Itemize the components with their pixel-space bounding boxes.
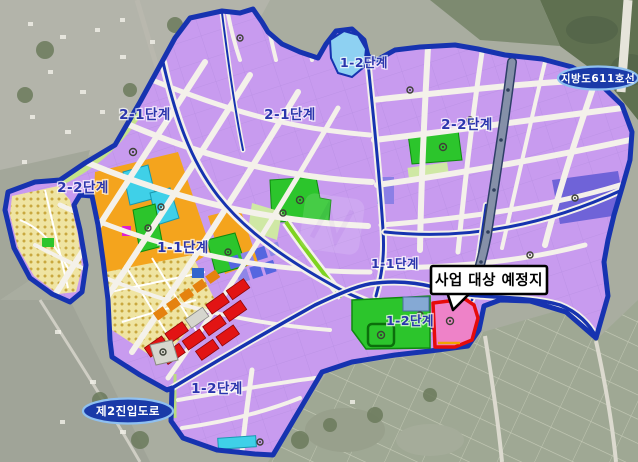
- region-label-2-2-center: 2-2단계: [441, 116, 493, 133]
- zone-cyan-lobe: [218, 436, 257, 450]
- callout-label: 사업 대상 예정지: [435, 271, 543, 289]
- road-badge-access: 제2진입도로: [83, 399, 173, 424]
- region-label-1-2-site: 1-2단계: [386, 313, 434, 328]
- region-label-1-2-top: 1-2단계: [340, 55, 388, 70]
- site-adjacent-blue-block: [403, 297, 429, 311]
- region-label-1-1-left: 1-1단계: [157, 239, 209, 256]
- road-badge-access-label: 제2진입도로: [96, 404, 160, 418]
- region-label-2-1-left: 2-1단계: [119, 106, 171, 123]
- map-screenshot: 2-1단계 2-1단계 2-2단계 1-2단계 2-2단계 1-1단계 1-1단…: [0, 0, 638, 462]
- plan-map-svg: 2-1단계 2-1단계 2-2단계 1-2단계 2-2단계 1-1단계 1-1단…: [0, 0, 638, 462]
- zone-blue-small: [192, 268, 204, 278]
- watermark: [298, 192, 365, 256]
- region-label-1-2-bottom: 1-2단계: [191, 380, 243, 397]
- region-label-1-1-right: 1-1단계: [371, 256, 419, 271]
- region-label-2-2-left: 2-2단계: [57, 179, 109, 196]
- road-badge-611-label: 지방도611호선: [561, 72, 635, 85]
- region-label-2-1-right: 2-1단계: [264, 106, 316, 123]
- road-badge-611: 지방도611호선: [558, 67, 638, 90]
